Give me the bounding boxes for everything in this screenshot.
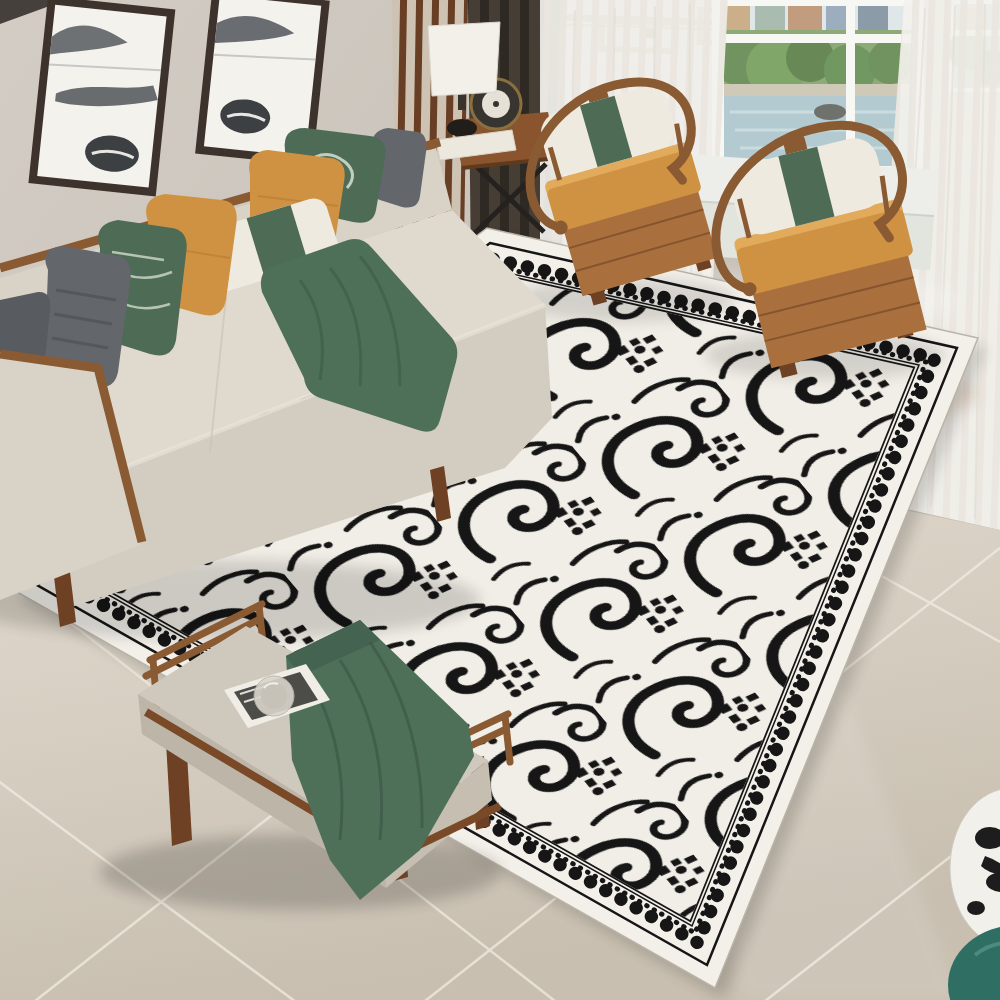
room-photo xyxy=(0,0,1000,1000)
glass-plate xyxy=(254,676,294,716)
wall-art-left xyxy=(28,0,175,196)
teapot xyxy=(447,119,477,137)
scene-canvas xyxy=(0,0,1000,1000)
